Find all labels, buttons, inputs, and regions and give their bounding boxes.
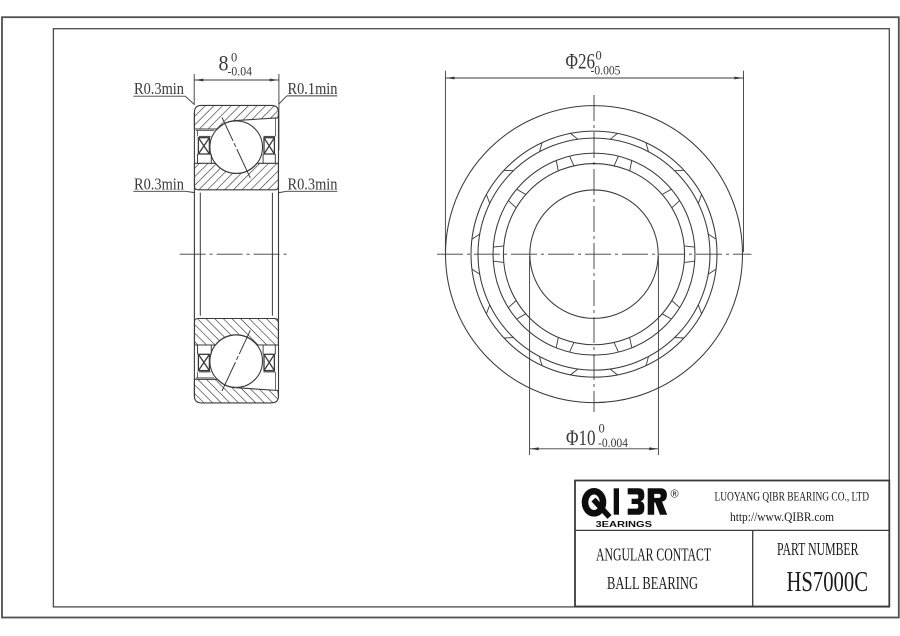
svg-text:0: 0 (596, 49, 602, 63)
svg-text:®: ® (671, 489, 679, 501)
svg-text:0: 0 (231, 51, 237, 65)
svg-text:LUOYANG QIBR BEARING CO., LTD: LUOYANG QIBR BEARING CO., LTD (715, 488, 870, 503)
svg-text:R0.3min: R0.3min (288, 174, 338, 193)
svg-text:R0.3min: R0.3min (134, 79, 184, 98)
svg-text:Φ10: Φ10 (566, 425, 596, 450)
svg-text:-0.005: -0.005 (591, 64, 621, 78)
svg-text:ANGULAR CONTACT: ANGULAR CONTACT (596, 545, 711, 565)
svg-text:3EARINGS: 3EARINGS (596, 520, 653, 529)
svg-text:BALL BEARING: BALL BEARING (607, 573, 698, 593)
svg-text:-0.04: -0.04 (228, 65, 253, 79)
svg-text:PART NUMBER: PART NUMBER (777, 539, 859, 559)
svg-text:R0.3min: R0.3min (134, 174, 184, 193)
svg-text:-0.004: -0.004 (598, 436, 629, 450)
svg-text:HS7000C: HS7000C (787, 566, 869, 598)
svg-text:http://www.QIBR.com: http://www.QIBR.com (730, 509, 834, 524)
svg-text:R0.1min: R0.1min (288, 79, 338, 98)
svg-text:0: 0 (599, 422, 605, 436)
